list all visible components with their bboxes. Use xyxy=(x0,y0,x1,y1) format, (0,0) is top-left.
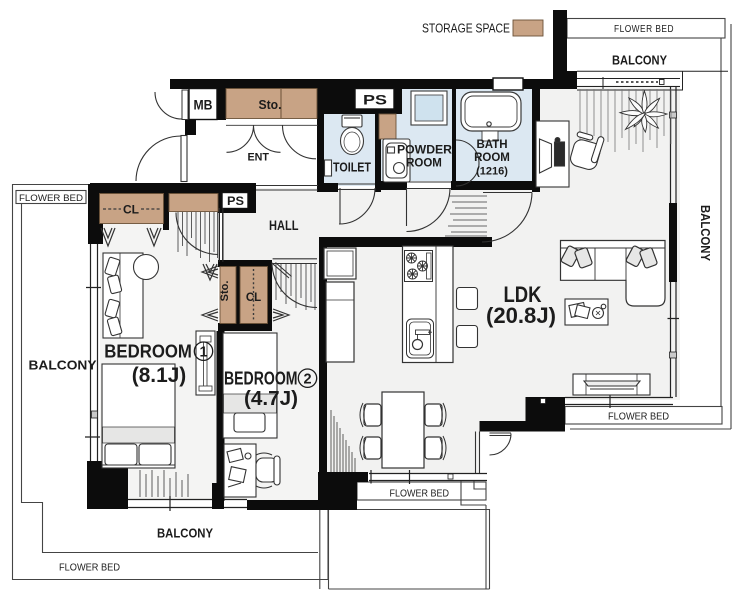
svg-text:CL: CL xyxy=(123,203,139,217)
svg-text:Sto.: Sto. xyxy=(259,98,282,112)
svg-text:PS: PS xyxy=(227,194,244,208)
svg-text:STORAGE SPACE: STORAGE SPACE xyxy=(422,22,510,36)
svg-text:BEDROOM: BEDROOM xyxy=(104,341,192,362)
svg-text:Sto.: Sto. xyxy=(219,281,231,302)
svg-text:1: 1 xyxy=(199,344,207,360)
svg-text:HALL: HALL xyxy=(269,218,299,233)
svg-text:BALCONY: BALCONY xyxy=(29,358,97,373)
svg-text:BEDROOM: BEDROOM xyxy=(224,368,298,389)
svg-text:BATH: BATH xyxy=(476,139,507,151)
svg-text:FLOWER BED: FLOWER BED xyxy=(19,193,84,203)
svg-text:MB: MB xyxy=(194,98,213,113)
svg-text:2: 2 xyxy=(303,371,311,387)
svg-text:BALCONY: BALCONY xyxy=(698,205,712,262)
svg-text:FLOWER BED: FLOWER BED xyxy=(390,488,450,500)
svg-text:ROOM: ROOM xyxy=(406,158,442,170)
svg-text:PS: PS xyxy=(363,92,387,108)
svg-text:ENT: ENT xyxy=(248,152,270,164)
svg-text:(4.7J): (4.7J) xyxy=(244,388,298,410)
svg-text:FLOWER BED: FLOWER BED xyxy=(608,411,669,423)
svg-text:BALCONY: BALCONY xyxy=(157,527,214,541)
svg-text:TOILET: TOILET xyxy=(333,161,371,175)
svg-text:ROOM: ROOM xyxy=(474,152,510,164)
svg-text:POWDER: POWDER xyxy=(397,145,453,157)
svg-text:FLOWER BED: FLOWER BED xyxy=(614,23,674,35)
svg-text:(1216): (1216) xyxy=(476,166,508,178)
svg-text:(20.8J): (20.8J) xyxy=(486,303,556,328)
svg-text:(8.1J): (8.1J) xyxy=(132,364,187,387)
svg-text:CL: CL xyxy=(246,292,261,304)
svg-text:FLOWER BED: FLOWER BED xyxy=(59,563,120,574)
svg-text:BALCONY: BALCONY xyxy=(612,53,667,68)
